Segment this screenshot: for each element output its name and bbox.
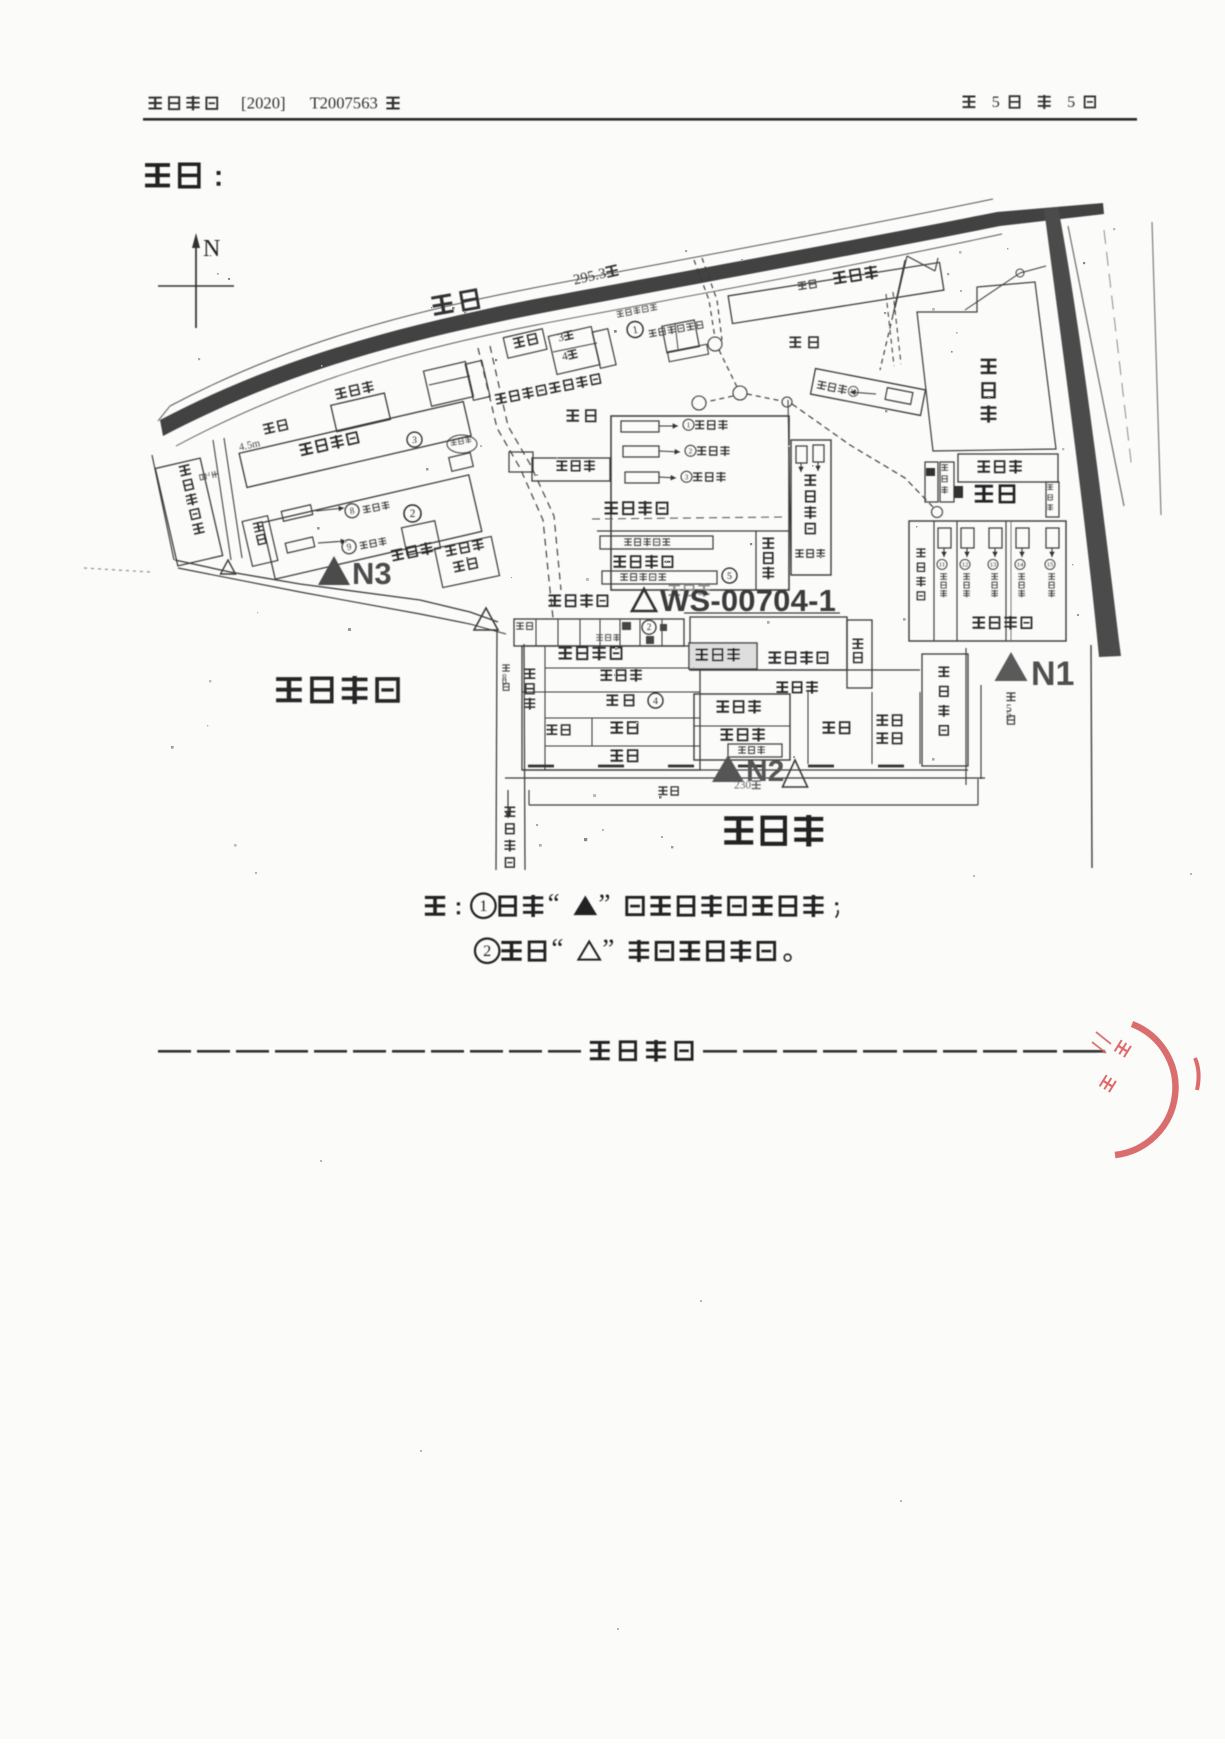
svg-text:N3: N3 <box>352 556 392 591</box>
svg-text:2: 2 <box>483 942 491 960</box>
svg-text:0: 0 <box>328 94 336 113</box>
svg-text:2: 2 <box>263 94 271 113</box>
svg-text:4: 4 <box>653 696 658 707</box>
svg-text:2: 2 <box>247 94 255 113</box>
svg-text:N1: N1 <box>1031 655 1074 693</box>
svg-text:7: 7 <box>345 94 353 113</box>
svg-text:0: 0 <box>272 94 280 113</box>
svg-text:3: 3 <box>370 94 378 113</box>
svg-text:5: 5 <box>992 94 1000 111</box>
svg-text:”: ” <box>602 934 614 964</box>
svg-text:13: 13 <box>990 562 997 569</box>
svg-text:2: 2 <box>689 446 693 455</box>
svg-text:1: 1 <box>479 897 487 915</box>
svg-text:5: 5 <box>727 571 732 582</box>
svg-text:12: 12 <box>962 562 969 569</box>
svg-text:N: N <box>203 236 220 262</box>
svg-text:5: 5 <box>353 94 361 113</box>
svg-text:3: 3 <box>412 435 417 446</box>
svg-text:11: 11 <box>939 562 945 569</box>
svg-text:”: ” <box>599 889 611 919</box>
svg-text:1: 1 <box>687 420 691 429</box>
svg-text:[: [ <box>241 94 247 113</box>
svg-text:15: 15 <box>1047 562 1054 569</box>
svg-text:5: 5 <box>1067 94 1075 111</box>
svg-text:“: “ <box>551 934 563 964</box>
svg-text:“: “ <box>548 889 560 919</box>
svg-text:0: 0 <box>745 780 751 792</box>
svg-text:3: 3 <box>685 472 689 481</box>
svg-text:0: 0 <box>255 94 263 113</box>
svg-text:2: 2 <box>647 622 652 632</box>
svg-text:N2: N2 <box>746 755 784 788</box>
svg-text:0: 0 <box>336 94 344 113</box>
svg-text:]: ] <box>280 94 286 113</box>
svg-text:2: 2 <box>320 94 328 113</box>
svg-text:T: T <box>310 94 320 113</box>
svg-text:14: 14 <box>1017 562 1024 569</box>
svg-text:6: 6 <box>361 94 369 113</box>
svg-text:2: 2 <box>410 508 416 520</box>
